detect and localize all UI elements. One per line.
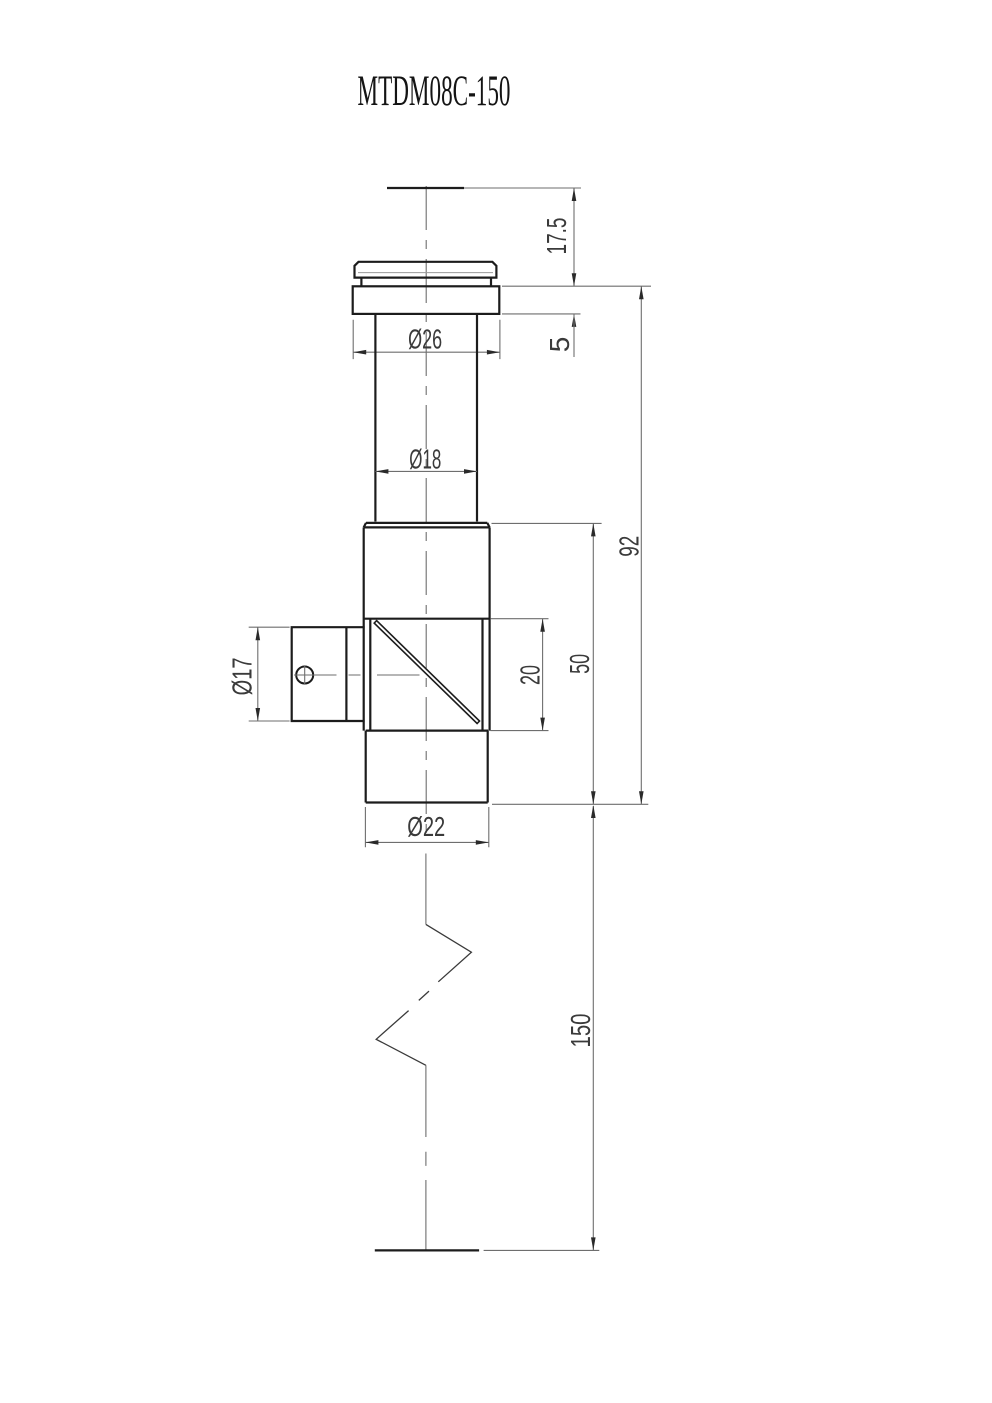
svg-text:Ø17: Ø17 [227, 657, 258, 695]
svg-text:Ø26: Ø26 [408, 324, 442, 355]
svg-text:5: 5 [544, 337, 575, 353]
svg-text:Ø22: Ø22 [407, 811, 445, 842]
svg-text:17.5: 17.5 [541, 218, 572, 255]
svg-text:Ø18: Ø18 [409, 444, 441, 475]
svg-text:92: 92 [614, 536, 645, 557]
svg-text:20: 20 [515, 665, 546, 685]
svg-text:50: 50 [564, 654, 595, 674]
svg-text:MTDM08C-150: MTDM08C-150 [358, 68, 511, 115]
svg-text:150: 150 [565, 1014, 596, 1048]
